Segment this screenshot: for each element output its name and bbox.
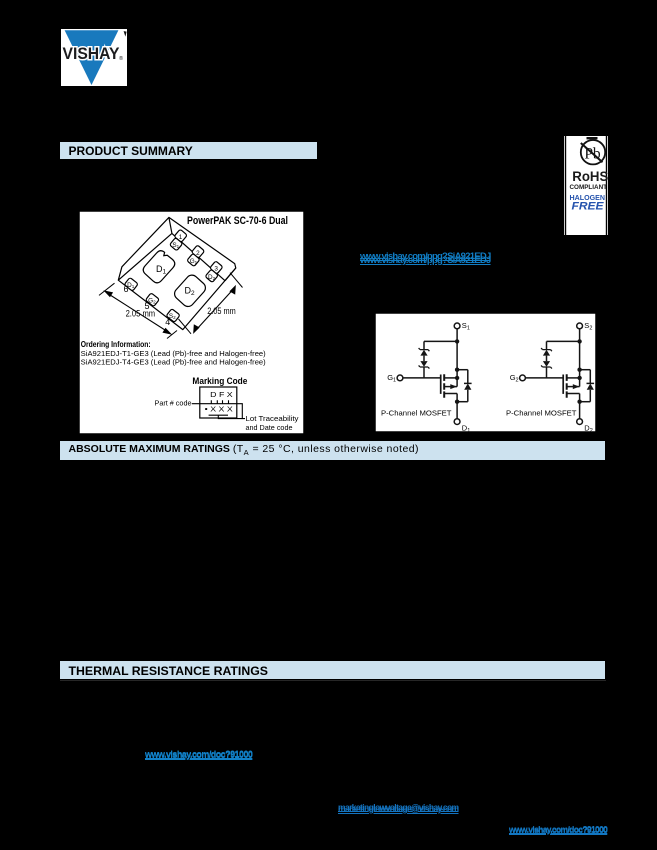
svg-text:2.05 mm: 2.05 mm	[207, 306, 236, 316]
svg-text:4: 4	[165, 317, 170, 327]
svg-text:• X X X: • X X X	[205, 404, 233, 413]
svg-text:2.05 mm: 2.05 mm	[126, 309, 156, 319]
svg-text:Part # code: Part # code	[155, 398, 192, 407]
svg-text:S1: S1	[172, 242, 179, 249]
svg-text:PowerPAK SC-70-6 Dual: PowerPAK SC-70-6 Dual	[187, 215, 288, 227]
svg-text:COMPLIANT: COMPLIANT	[570, 184, 608, 191]
svg-text:Ordering Information:: Ordering Information:	[81, 340, 151, 349]
svg-text:G1: G1	[190, 258, 198, 265]
svg-text:SiA921EDJ-T4-GE3 (Lead (Pb)-fr: SiA921EDJ-T4-GE3 (Lead (Pb)-free and Hal…	[81, 358, 267, 367]
svg-text:P-Channel MOSFET: P-Channel MOSFET	[506, 408, 577, 417]
svg-text:D2: D2	[208, 274, 216, 281]
svg-text:P-Channel MOSFET: P-Channel MOSFET	[381, 408, 452, 417]
svg-text:Lot Traceability: Lot Traceability	[246, 414, 299, 423]
svg-text:6: 6	[124, 284, 129, 294]
svg-text:RoHS: RoHS	[572, 169, 608, 184]
svg-text:Marking Code: Marking Code	[192, 376, 247, 386]
svg-text:FREE: FREE	[572, 201, 605, 213]
svg-text:3: 3	[214, 266, 218, 273]
svg-text:VISHAY: VISHAY	[63, 45, 120, 63]
svg-text:and Date code: and Date code	[246, 423, 293, 432]
svg-text:®: ®	[119, 55, 123, 62]
svg-text:D F X: D F X	[210, 390, 233, 399]
svg-text:1: 1	[179, 234, 183, 241]
svg-text:2: 2	[196, 250, 200, 257]
